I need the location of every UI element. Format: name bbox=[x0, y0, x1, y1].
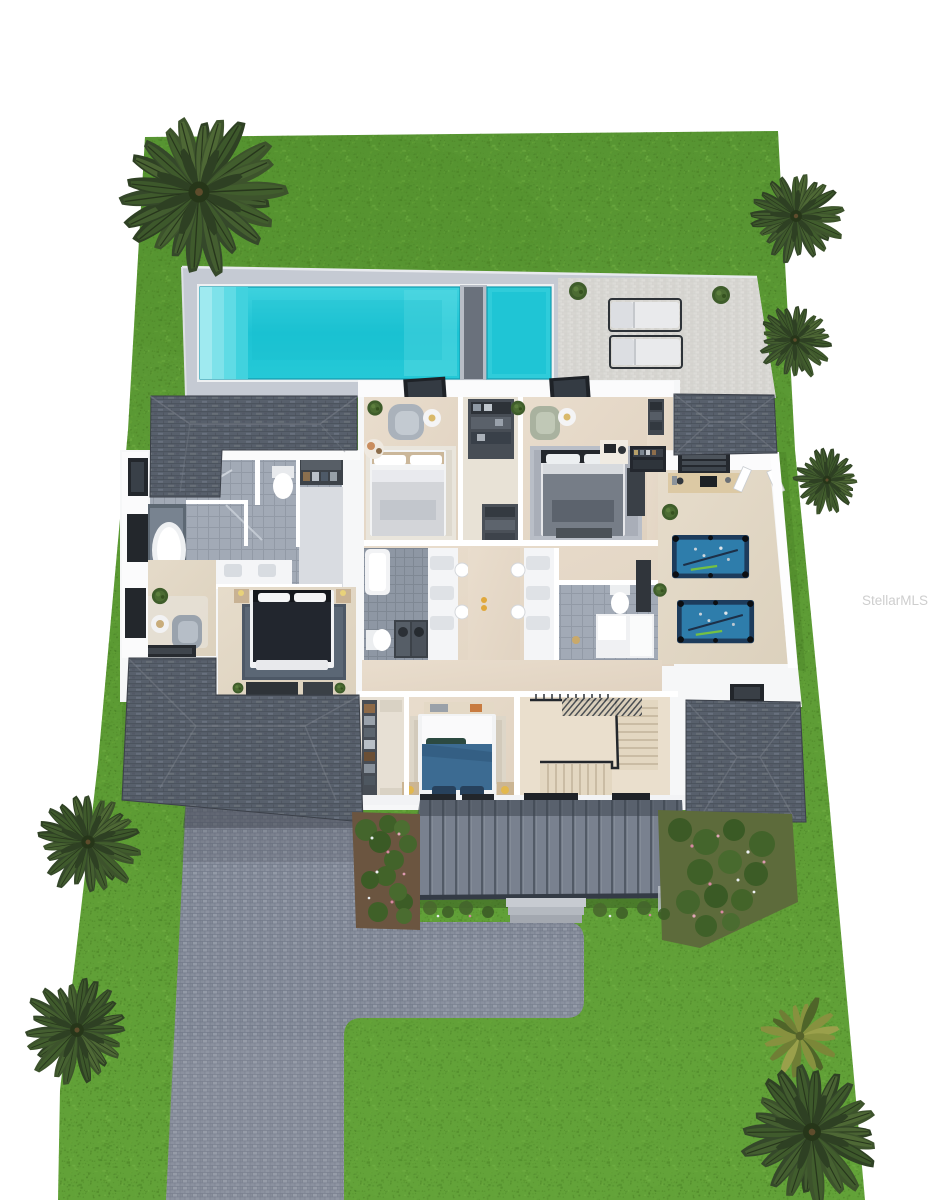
svg-text:StellarMLS: StellarMLS bbox=[862, 593, 928, 608]
